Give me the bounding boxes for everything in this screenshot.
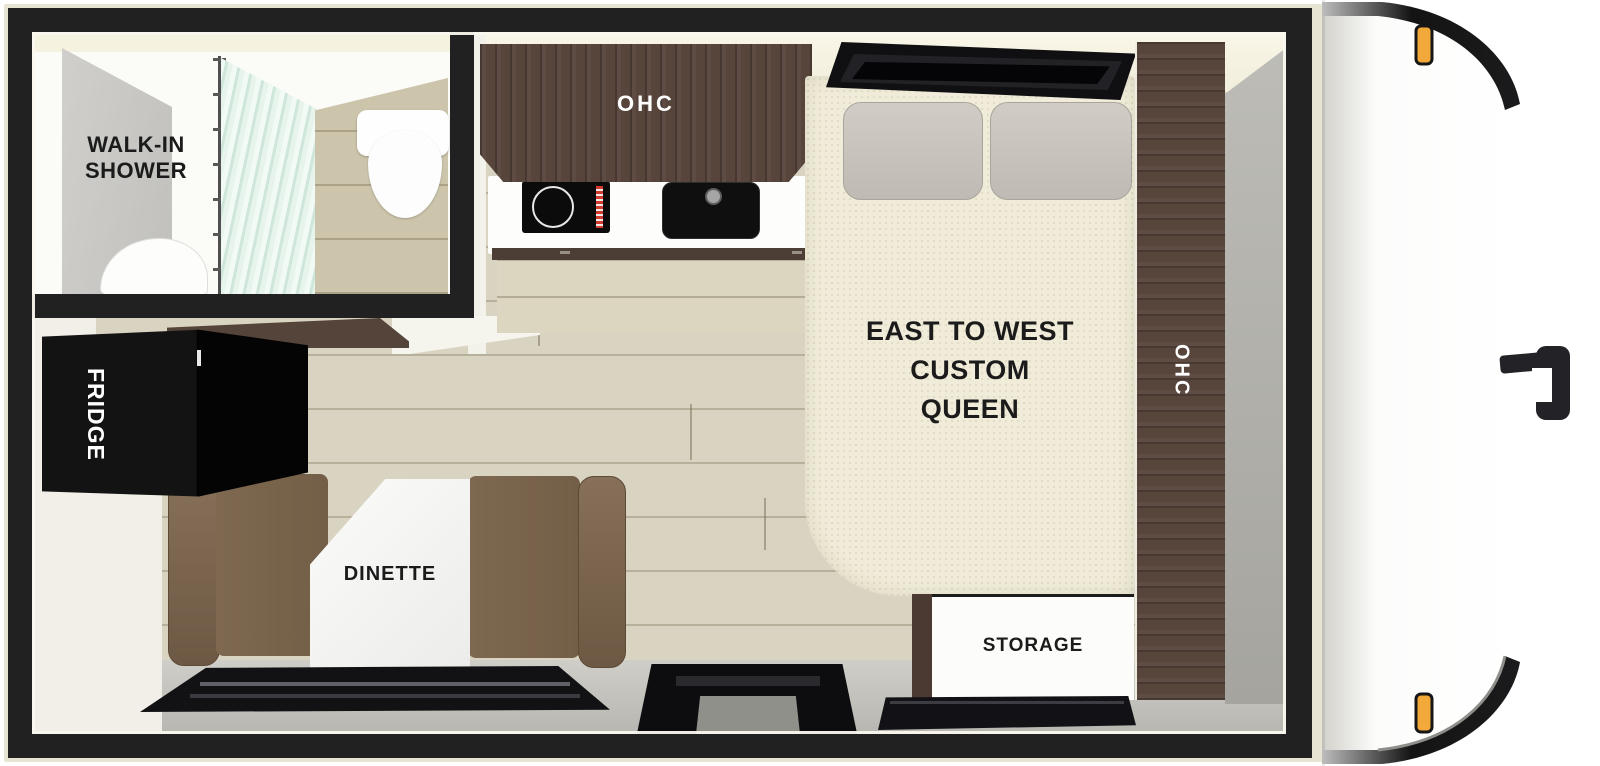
dinette-window: [140, 666, 610, 712]
cap-seam-shadow: [1322, 0, 1325, 766]
entry-mat: [878, 696, 1136, 730]
under-bed-storage: STORAGE: [932, 594, 1134, 700]
trailer-front-cap: [1312, 0, 1600, 766]
bed-label-line2: CUSTOM: [805, 351, 1135, 390]
wall-bottom: [8, 734, 1310, 758]
walk-in-shower-label-line1: WALK-IN: [50, 132, 222, 158]
bathroom-ceiling-strip: [32, 32, 450, 52]
entry-door-frame: [676, 676, 820, 686]
bathroom-wall-bottom: [32, 294, 474, 318]
storage-label: STORAGE: [932, 635, 1134, 657]
bedside-ohc-label: OHC: [1170, 344, 1193, 397]
pillow-left: [843, 102, 983, 200]
front-cap-body: [1322, 6, 1516, 760]
window-slit: [200, 682, 570, 686]
sink-faucet: [705, 188, 722, 205]
bathroom-wall-right: [450, 32, 474, 318]
cooktop-controls: [596, 186, 603, 228]
kitchen-counter-edge: [492, 248, 812, 260]
dinette-bench-seat-right: [468, 476, 580, 658]
dinette-label: DINETTE: [310, 563, 470, 586]
cooktop-burner: [532, 186, 574, 228]
wall-right: [1286, 8, 1312, 758]
bed-label-line1: EAST TO WEST: [805, 312, 1135, 351]
fridge-label-wrap: FRIDGE: [82, 328, 109, 500]
kitchen-ohc-label: OHC: [617, 91, 675, 117]
cabinet-latch: [792, 251, 802, 254]
wall-left: [8, 8, 32, 758]
pillow-right: [990, 102, 1132, 200]
fridge-label: FRIDGE: [82, 368, 109, 461]
left-interior-wall-lower: [32, 470, 162, 734]
cooktop: [522, 181, 610, 233]
bed-label: EAST TO WEST CUSTOM QUEEN: [805, 312, 1135, 429]
rv-floorplan: WALK-IN SHOWER OHC EAST TO WEST CUSTOM Q…: [0, 0, 1600, 766]
window-slit: [190, 694, 580, 698]
walk-in-shower-label-line2: SHOWER: [50, 158, 222, 184]
wall-top: [8, 8, 1310, 32]
front-interior-wall: [1225, 48, 1286, 704]
floor-plank-joint: [764, 498, 766, 550]
fridge: FRIDGE: [42, 328, 308, 500]
dinette-bench-back-left: [168, 474, 220, 666]
kitchen-cabinet-seam: [497, 296, 807, 298]
bedside-overhead-cabinet: OHC: [1135, 42, 1225, 700]
dinette-bench-back-right: [578, 476, 626, 668]
body-edge-strip: [1312, 4, 1322, 762]
marker-light-top: [1416, 26, 1432, 64]
storage-cabinet-edge: [912, 594, 932, 700]
fridge-handle: [197, 350, 201, 366]
shower-glass-panel: [221, 58, 318, 294]
entry-door: [636, 664, 858, 738]
bed-label-line3: QUEEN: [805, 390, 1135, 429]
entry-mat-highlight: [890, 701, 1124, 704]
bathroom: WALK-IN SHOWER: [32, 32, 474, 318]
cabinet-latch: [560, 251, 570, 254]
walk-in-shower-label: WALK-IN SHOWER: [50, 132, 222, 184]
floor-plank-joint: [690, 404, 692, 460]
kitchen-overhead-cabinet: OHC: [480, 44, 812, 182]
entry-step: [696, 696, 800, 734]
marker-light-bottom: [1416, 694, 1432, 732]
